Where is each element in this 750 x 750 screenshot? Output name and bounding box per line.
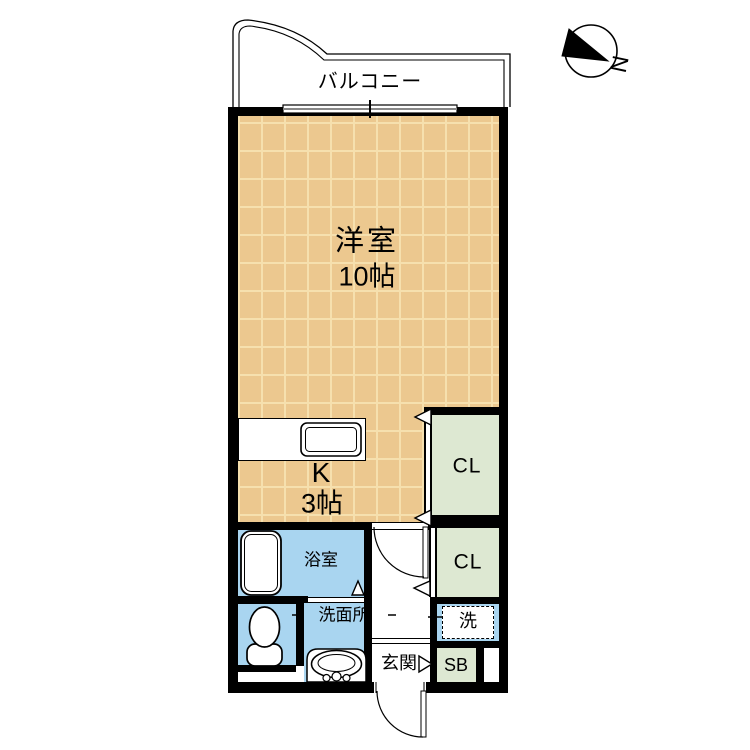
wall-sb-divider: [476, 648, 484, 682]
balcony-outline-inner: [239, 26, 504, 107]
hall-door: [374, 527, 428, 578]
toilet-lower-strip: [238, 672, 296, 682]
living-room-label: 洋室: [335, 228, 399, 257]
kitchen-doorway: [372, 522, 428, 530]
floor-plan: バルコニー 洋室 10帖 K 3帖 CL CL 浴室 洗面所 玄関 洗 SB N: [0, 0, 750, 750]
entrance-step: [372, 638, 430, 644]
niche-area: [484, 648, 499, 682]
wall-right: [499, 107, 508, 693]
north-label: N: [606, 53, 632, 74]
closet-upper-label: CL: [453, 456, 482, 477]
closet-upper-door: [424, 415, 432, 515]
balcony-outline-outer: [233, 20, 510, 107]
wall-bath-right: [364, 522, 372, 682]
bathroom-area: [238, 530, 364, 597]
kitchen-size: 3帖: [301, 491, 343, 518]
kitchen-label: K: [312, 459, 331, 487]
entrance-door-gap: [374, 682, 426, 693]
entrance-label: 玄関: [381, 654, 417, 672]
wall-top: [228, 107, 508, 116]
wall-left: [228, 107, 238, 693]
washroom-label: 洗面所: [319, 607, 370, 624]
wall-bottom-left: [228, 682, 374, 693]
wall-bottom-right: [426, 682, 508, 693]
balcony-label: バルコニー: [318, 72, 423, 92]
toilet-area: [238, 604, 296, 665]
closet-lower-door-marker: [414, 581, 430, 596]
living-room-size: 10帖: [338, 264, 395, 291]
closet-upper-wall-top: [424, 407, 499, 415]
closet-lower-door: [429, 528, 437, 597]
kitchen-counter: [238, 418, 366, 461]
wall-cl2-bottom: [430, 597, 499, 604]
wall-toilet-bottom: [238, 665, 296, 672]
wall-toilet-divider: [296, 596, 304, 666]
bathroom-label: 浴室: [304, 552, 338, 569]
shoe-box-label: SB: [444, 656, 468, 674]
laundry-label: 洗: [459, 612, 477, 630]
wall-mid-left: [228, 522, 372, 530]
closet-lower-label: CL: [454, 552, 483, 573]
wall-laundry-bottom: [430, 641, 499, 648]
